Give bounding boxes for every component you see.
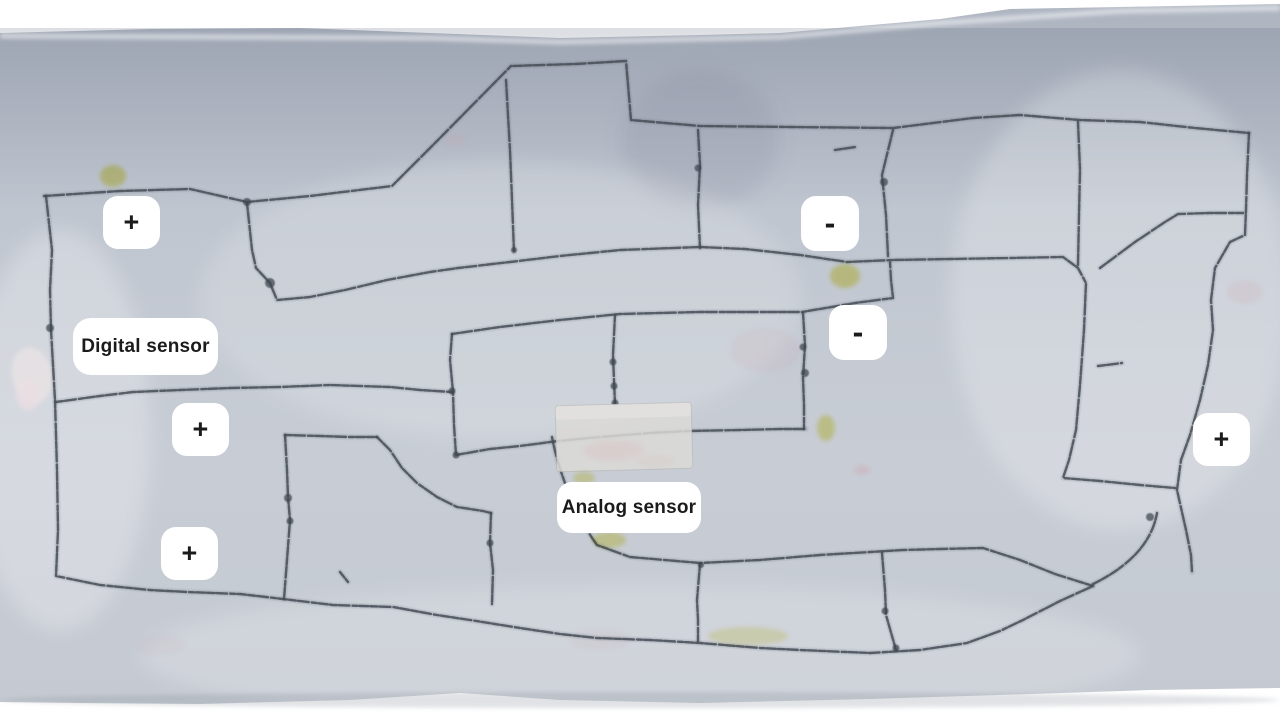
label-plus-top-left: + [103,196,160,249]
label-minus-middle: - [829,305,887,360]
annotation-labels-layer: +--Digital sensor+Analog sensor++ [0,0,1280,720]
label-digital-sensor: Digital sensor [73,318,218,375]
label-plus-right: + [1193,413,1250,466]
label-plus-middle-left: + [172,403,229,456]
label-analog-sensor: Analog sensor [557,482,701,533]
label-minus-top: - [801,196,859,251]
photo-canvas: +--Digital sensor+Analog sensor++ [0,0,1280,720]
label-plus-bottom-left: + [161,527,218,580]
